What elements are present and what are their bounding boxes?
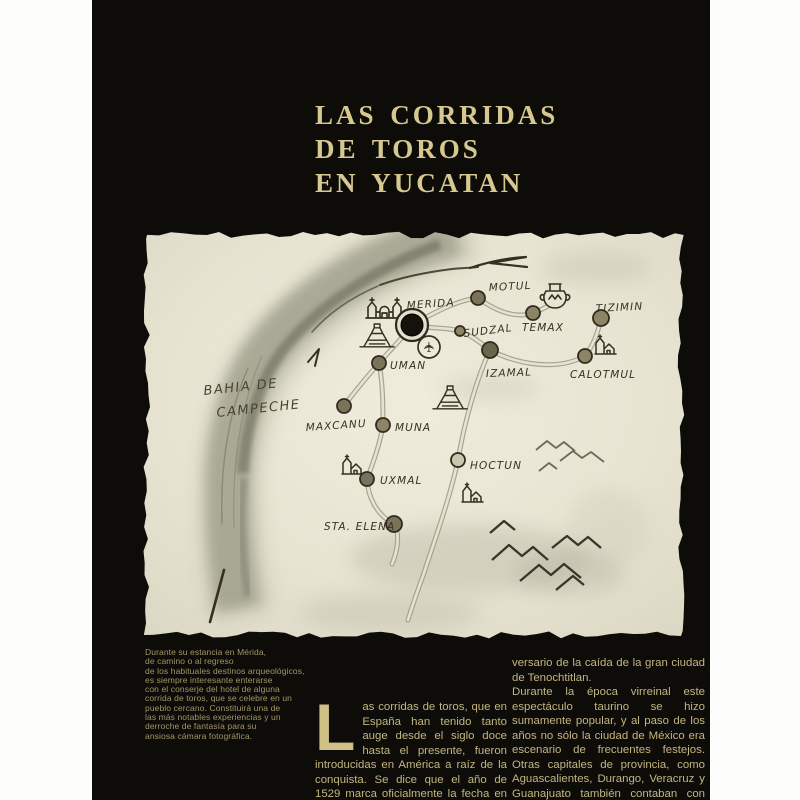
map-dot-motul [471,291,485,305]
map-label-izamal: IZAMAL [486,366,533,380]
map-dot-merida [401,314,423,336]
map-dot-calotmul [578,349,592,363]
body-column-right: versario de la caída de la gran ciudad d… [512,656,705,800]
map-label-tizimin: TIZIMIN [596,301,644,315]
map-dot-uman [372,356,386,370]
map-canvas: ✈ [140,228,688,642]
map-label-calotmul: CALOTMUL [570,369,636,381]
map-dot-izamal [482,342,498,358]
map-dot-muna [376,418,390,432]
body-paragraph: Durante la época virreinal este espectác… [512,685,705,800]
map-dot-uxmal [360,472,374,486]
title-line-1: LAS CORRIDAS [315,98,558,132]
caption-line: ansiosa cámara fotográfica. [145,732,315,741]
map-label-hoctun: HOCTUN [470,460,522,472]
magazine-page: LAS CORRIDAS DE TOROS EN YUCATAN [92,0,710,800]
map-label-uxmal: UXMAL [380,475,422,487]
map-label-temax: TEMAX [522,322,564,334]
scan-background: LAS CORRIDAS DE TOROS EN YUCATAN [0,0,800,800]
yucatan-hand-drawn-map: ✈ [140,228,688,642]
map-dot-hoctun [451,453,465,467]
body-column-left: Las corridas de toros, que en España han… [315,700,507,800]
map-label-uman: UMAN [390,360,426,372]
photo-caption: Durante su estancia en Mérida, de camino… [145,648,315,741]
map-label-sta-elena: STA. ELENA [324,521,395,533]
map-label-muna: MUNA [395,422,431,434]
map-dot-temax [526,306,540,320]
map-dot-maxcanu [337,399,351,413]
article-title: LAS CORRIDAS DE TOROS EN YUCATAN [315,98,558,200]
airplane-icon: ✈ [421,341,437,353]
title-line-3: EN YUCATAN [315,166,558,200]
title-line-2: DE TOROS [315,132,558,166]
drop-cap: L [315,702,355,752]
body-paragraph: versario de la caída de la gran ciudad d… [512,656,705,685]
map-label-motul: MOTUL [489,280,532,294]
